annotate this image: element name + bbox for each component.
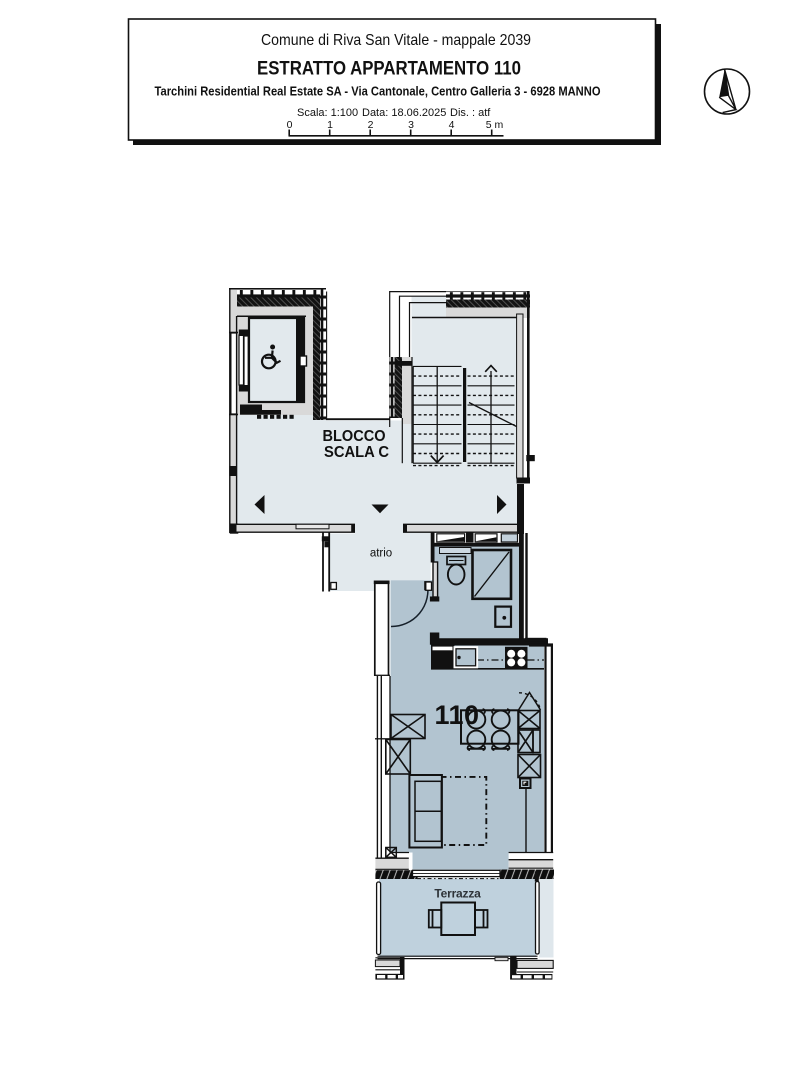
svg-text:110: 110 [434,700,479,730]
svg-text:Data: 18.06.2025: Data: 18.06.2025 [362,107,446,119]
svg-text:atrio: atrio [370,548,392,560]
svg-text:0: 0 [287,119,293,131]
svg-text:Dis. : atf: Dis. : atf [450,107,491,119]
svg-text:Comune di Riva San Vitale - ma: Comune di Riva San Vitale - mappale 2039 [261,32,531,49]
svg-text:Tarchini Residential Real Esta: Tarchini Residential Real Estate SA - Vi… [155,85,601,99]
svg-text:3: 3 [408,119,414,131]
svg-text:ESTRATTO APPARTAMENTO 110: ESTRATTO APPARTAMENTO 110 [257,58,521,80]
svg-text:4: 4 [449,119,455,131]
svg-text:SCALA C: SCALA C [324,444,389,461]
svg-text:Scala: 1:100: Scala: 1:100 [297,107,358,119]
svg-text:Terrazza: Terrazza [434,887,481,901]
svg-text:2: 2 [368,119,374,131]
svg-text:5 m: 5 m [486,119,504,131]
svg-text:BLOCCO: BLOCCO [323,428,386,445]
svg-text:1: 1 [327,119,333,131]
